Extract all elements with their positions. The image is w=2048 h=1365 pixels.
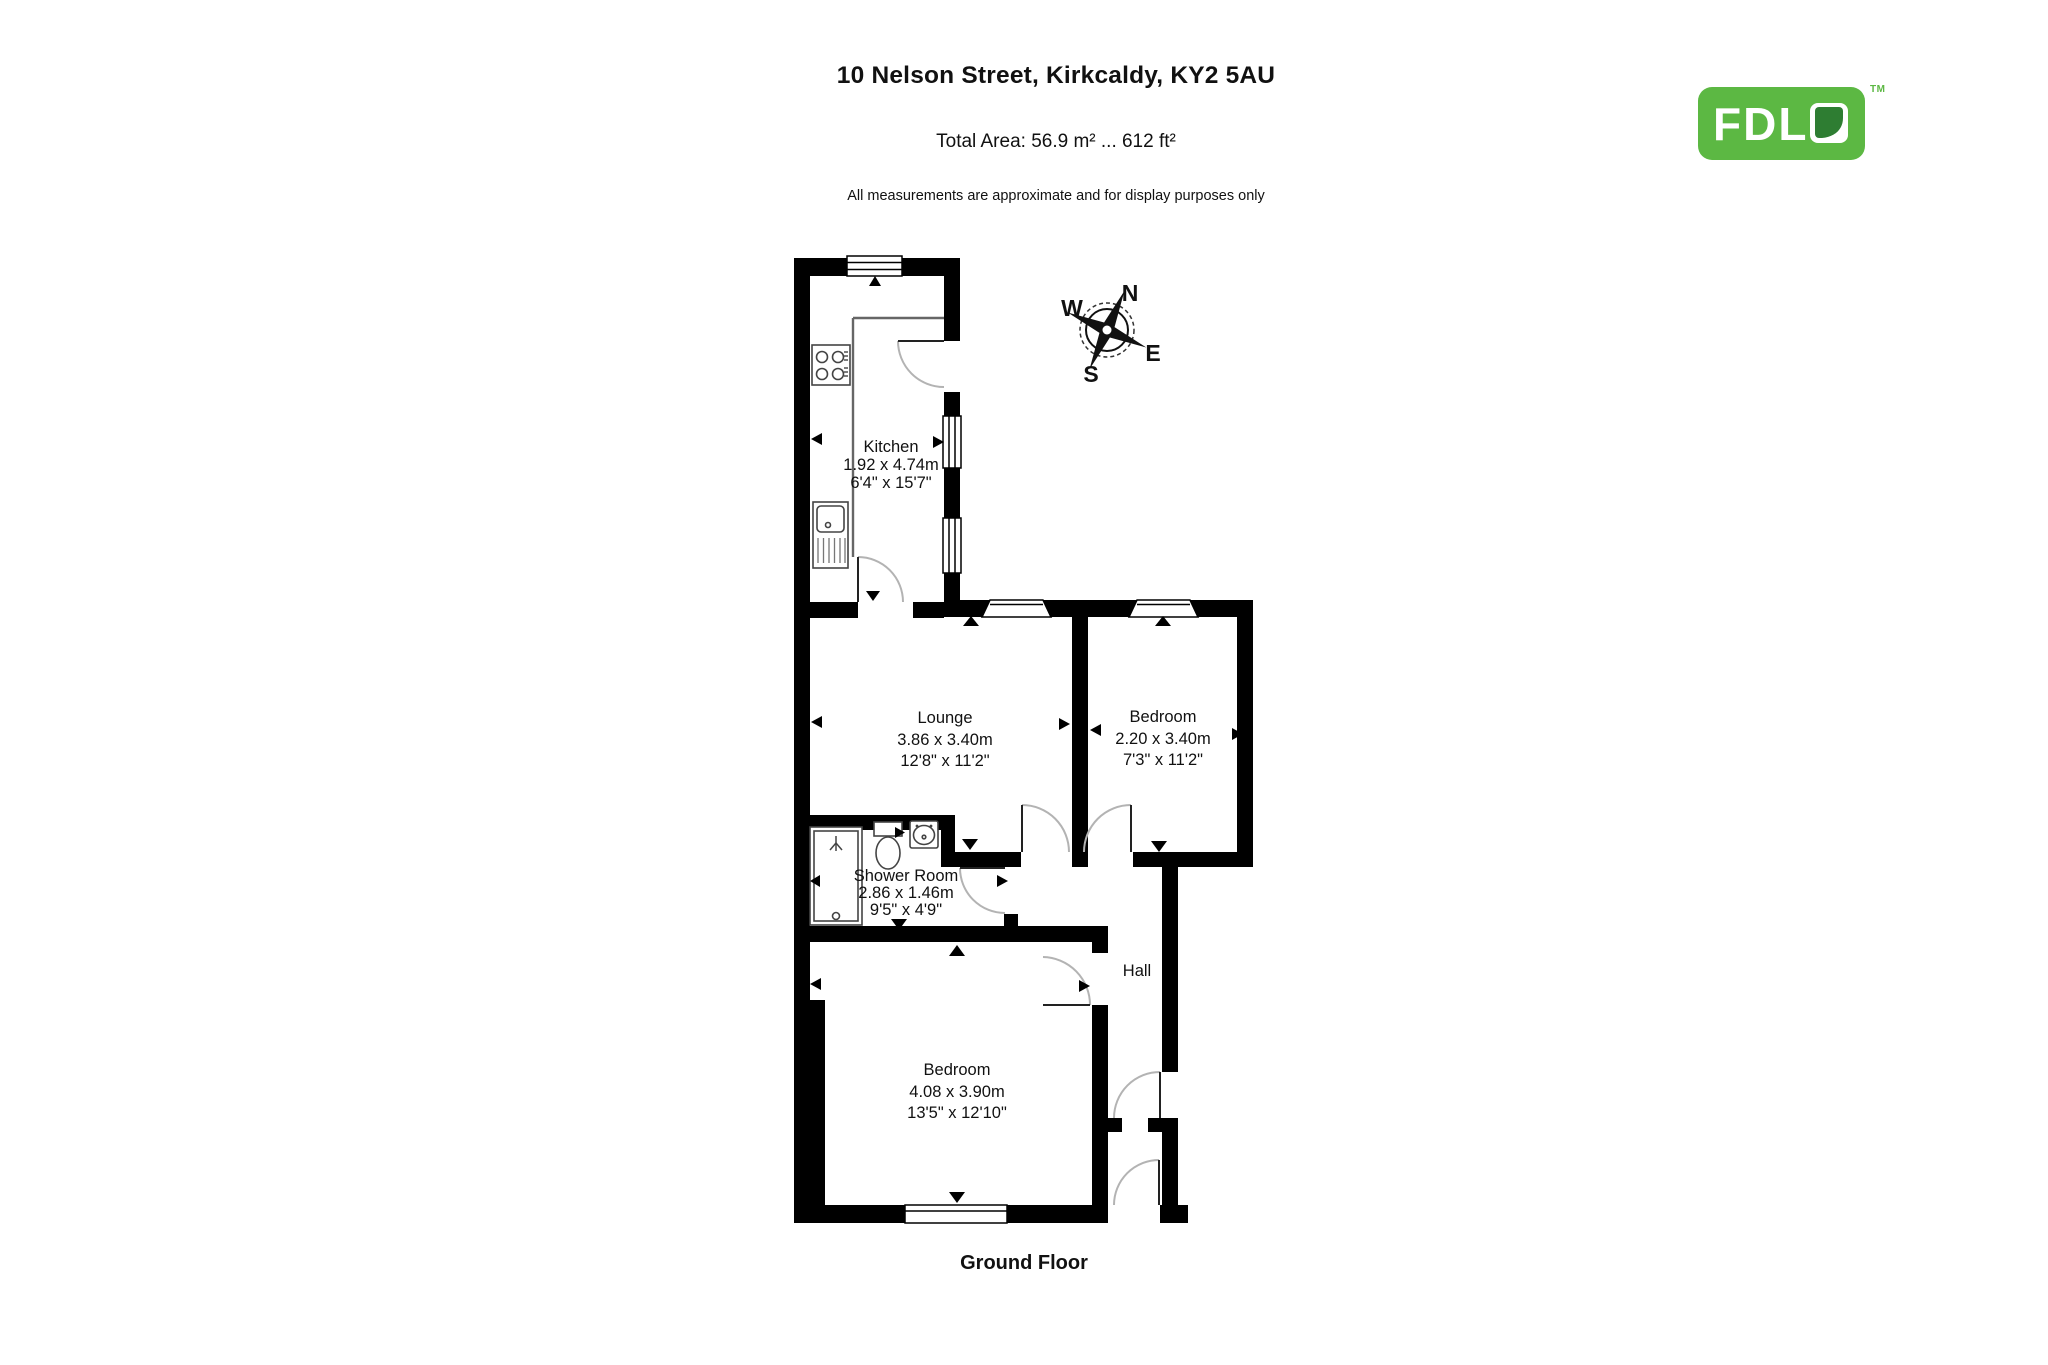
- bedroom2-window: [905, 1205, 1007, 1223]
- hall-label: Hall: [1123, 962, 1151, 980]
- bedroom-hall-door: [1084, 805, 1131, 852]
- lounge-hall-door: [1022, 805, 1069, 852]
- floorplan-page: 10 Nelson Street, Kirkcaldy, KY2 5AU Tot…: [0, 0, 2048, 1365]
- floor-plan-canvas: Kitchen 1.92 x 4.74m 6'4" x 15'7" Lounge…: [0, 0, 2048, 1365]
- kitchen-top-window: [847, 256, 902, 276]
- entrance-door: [1114, 1160, 1159, 1205]
- kitchen-dim-imperial: 6'4" x 15'7": [850, 474, 931, 492]
- arrow-left-icon: [811, 716, 822, 728]
- compass-north-label: N: [1122, 280, 1139, 306]
- fixtures: [810, 345, 938, 925]
- arrow-down-icon: [1151, 841, 1167, 852]
- kitchen-side-window-lower: [943, 518, 961, 573]
- kitchen-dim-metric: 1.92 x 4.74m: [843, 456, 938, 474]
- hob-icon: [812, 345, 850, 385]
- compass-rose: N W E S: [1050, 273, 1164, 387]
- bedroom1-dim-metric: 2.20 x 3.40m: [1115, 730, 1210, 748]
- bedroom2-door: [1043, 957, 1090, 1005]
- shower-dim-imperial: 9'5" x 4'9": [870, 901, 942, 919]
- hall-side-door: [1114, 1072, 1160, 1118]
- shower-room-door: [960, 868, 1005, 913]
- compass-west-label: W: [1061, 295, 1083, 321]
- shower-dim-metric: 2.86 x 1.46m: [858, 884, 953, 902]
- compass-south-label: S: [1083, 361, 1098, 387]
- lounge-window: [982, 600, 1051, 617]
- arrow-up-icon: [949, 945, 965, 956]
- kitchen-label: Kitchen: [863, 438, 918, 456]
- arrow-left-icon: [811, 433, 822, 445]
- sink-icon: [813, 502, 848, 568]
- arrow-down-icon: [866, 591, 880, 601]
- kitchen-side-door: [898, 341, 944, 387]
- arrow-down-icon: [949, 1192, 965, 1203]
- bedroom-window: [1129, 600, 1198, 617]
- bedroom1-label: Bedroom: [1130, 708, 1197, 726]
- kitchen-side-window-upper: [943, 416, 961, 468]
- bedroom2-dim-imperial: 13'5" x 12'10": [907, 1104, 1007, 1122]
- bedroom2-dim-metric: 4.08 x 3.90m: [909, 1083, 1004, 1101]
- bedroom2-label: Bedroom: [924, 1061, 991, 1079]
- arrow-up-icon: [963, 616, 979, 626]
- basin-icon: [910, 821, 938, 848]
- arrow-right-icon: [1059, 718, 1070, 730]
- lounge-dim-metric: 3.86 x 3.40m: [897, 731, 992, 749]
- arrow-up-icon: [869, 276, 881, 286]
- arrow-right-icon: [997, 875, 1008, 887]
- arrow-left-icon: [1090, 724, 1101, 736]
- shower-room-label: Shower Room: [854, 867, 959, 885]
- compass-east-label: E: [1145, 340, 1160, 366]
- bedroom1-dim-imperial: 7'3" x 11'2": [1123, 751, 1203, 769]
- arrow-down-icon: [962, 839, 978, 850]
- arrow-left-icon: [810, 978, 821, 990]
- kitchen-lounge-door: [858, 557, 903, 602]
- lounge-label: Lounge: [917, 709, 972, 727]
- lounge-dim-imperial: 12'8" x 11'2": [900, 752, 989, 770]
- room-labels: Kitchen 1.92 x 4.74m 6'4" x 15'7" Lounge…: [843, 438, 1210, 1122]
